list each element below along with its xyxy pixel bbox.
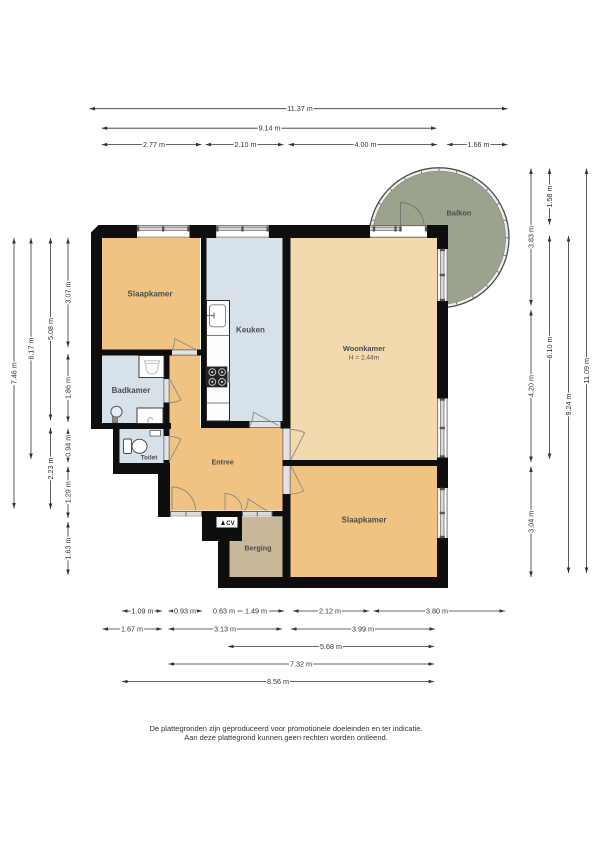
svg-text:0.94 m: 0.94 m bbox=[64, 435, 73, 457]
svg-text:2.77 m: 2.77 m bbox=[143, 140, 165, 149]
svg-text:2.23 m: 2.23 m bbox=[46, 458, 55, 480]
svg-text:Keuken: Keuken bbox=[236, 326, 265, 335]
svg-text:Woonkamer: Woonkamer bbox=[343, 344, 385, 353]
svg-text:Entree: Entree bbox=[212, 458, 234, 467]
svg-text:6.10 m: 6.10 m bbox=[545, 337, 554, 359]
svg-text:0.93 m: 0.93 m bbox=[174, 607, 196, 616]
svg-text:H = 2.44m: H = 2.44m bbox=[349, 355, 379, 362]
svg-text:3.83 m: 3.83 m bbox=[527, 226, 536, 248]
svg-text:11.09 m: 11.09 m bbox=[582, 358, 591, 383]
svg-text:1.86 m: 1.86 m bbox=[64, 377, 73, 399]
svg-text:1.67 m: 1.67 m bbox=[121, 625, 143, 634]
svg-text:11.37 m: 11.37 m bbox=[287, 104, 312, 113]
svg-text:2.12 m: 2.12 m bbox=[319, 607, 341, 616]
svg-text:Aan deze plattegrond kunnen ge: Aan deze plattegrond kunnen geen rechten… bbox=[184, 733, 388, 742]
svg-text:1.63 m: 1.63 m bbox=[64, 538, 73, 560]
svg-text:Toilet: Toilet bbox=[141, 455, 159, 462]
svg-text:De plattegronden zijn geproduc: De plattegronden zijn geproduceerd voor … bbox=[149, 724, 422, 733]
svg-text:2.10 m: 2.10 m bbox=[235, 140, 257, 149]
svg-text:5.08 m: 5.08 m bbox=[46, 318, 55, 340]
svg-text:CV: CV bbox=[226, 521, 234, 527]
svg-text:5.68 m: 5.68 m bbox=[320, 642, 342, 651]
svg-text:Balkon: Balkon bbox=[446, 208, 471, 217]
svg-text:0.63 m: 0.63 m bbox=[213, 607, 235, 616]
svg-text:1.58 m: 1.58 m bbox=[545, 186, 554, 208]
svg-text:9.14 m: 9.14 m bbox=[259, 124, 281, 133]
svg-text:1.49 m: 1.49 m bbox=[245, 607, 267, 616]
svg-text:3.80 m: 3.80 m bbox=[426, 607, 448, 616]
svg-text:1.09 m: 1.09 m bbox=[132, 607, 154, 616]
svg-text:7.46 m: 7.46 m bbox=[10, 362, 19, 384]
svg-text:4.00 m: 4.00 m bbox=[355, 140, 377, 149]
svg-text:3.13 m: 3.13 m bbox=[214, 625, 236, 634]
svg-text:7.32 m: 7.32 m bbox=[290, 660, 312, 669]
svg-text:4.20 m: 4.20 m bbox=[527, 375, 536, 397]
svg-text:Slaapkamer: Slaapkamer bbox=[128, 290, 173, 299]
svg-text:Badkamer: Badkamer bbox=[112, 386, 151, 395]
svg-text:6.17 m: 6.17 m bbox=[27, 338, 36, 360]
svg-text:3.99 m: 3.99 m bbox=[352, 625, 374, 634]
svg-text:9.24 m: 9.24 m bbox=[564, 394, 573, 416]
svg-text:Slaapkamer: Slaapkamer bbox=[342, 516, 387, 525]
svg-text:1.66 m: 1.66 m bbox=[468, 140, 490, 149]
svg-text:3.07 m: 3.07 m bbox=[64, 282, 73, 304]
svg-text:3.04 m: 3.04 m bbox=[527, 511, 536, 533]
svg-text:Berging: Berging bbox=[244, 544, 271, 553]
svg-text:1.29 m: 1.29 m bbox=[64, 481, 73, 503]
svg-text:8.56 m: 8.56 m bbox=[267, 677, 289, 686]
